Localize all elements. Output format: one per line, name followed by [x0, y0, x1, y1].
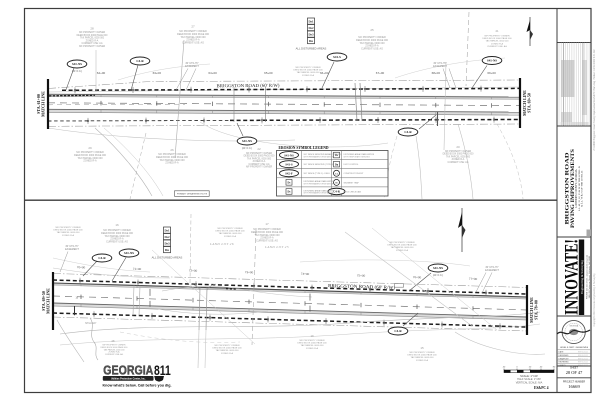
svg-text:Ds3: Ds3 [309, 32, 314, 36]
svg-text:DEED BOOK 0000 PAGE 000: DEED BOOK 0000 PAGE 000 [77, 34, 108, 37]
svg-text:CURRENT USE: AG: CURRENT USE: AG [256, 240, 278, 243]
svg-text:DEED BOOK 0000 PAGE 000: DEED BOOK 0000 PAGE 000 [482, 37, 512, 40]
svg-text:S41-NS: S41-NS [433, 266, 443, 270]
svg-text:STA. 69+50: STA. 69+50 [41, 291, 46, 311]
svg-text:16: 16 [115, 223, 119, 227]
svg-text:STA. 61+00: STA. 61+00 [36, 94, 41, 114]
svg-text:Engineering & Surveying: Engineering & Surveying [580, 260, 584, 294]
svg-text:77+00: 77+00 [469, 277, 478, 281]
svg-text:ZONED R-A: ZONED R-A [221, 352, 234, 355]
svg-text:MATCH LINE: MATCH LINE [46, 288, 51, 314]
svg-text:DEED BOOK 0000 PAGE 000: DEED BOOK 0000 PAGE 000 [53, 229, 83, 232]
svg-text:Ds: Ds [288, 191, 291, 194]
svg-text:TAX PARCEL 0000 000: TAX PARCEL 0000 000 [216, 349, 240, 352]
svg-text:RWH 10-31-22: RWH 10-31-22 [578, 362, 588, 364]
svg-text:VERTICAL SCALE: N/A: VERTICAL SCALE: N/A [516, 381, 543, 384]
svg-text:S41-NS: S41-NS [124, 251, 134, 255]
svg-text:Ds2: Ds2 [309, 26, 314, 30]
svg-text:Z:\16669 Briggston Road Paving: Z:\16669 Briggston Road Paving Improveme… [593, 49, 596, 150]
svg-text:ES&PC 4: ES&PC 4 [534, 385, 549, 390]
svg-text:WITH PERMANENT VEGETATION: WITH PERMANENT VEGETATION [304, 155, 334, 158]
svg-text:ALL DISTURBED AREAS: ALL DISTURBED AREAS [296, 47, 327, 51]
svg-text:S41-NS: S41-NS [487, 59, 497, 63]
svg-text:76+00: 76+00 [413, 275, 422, 279]
svg-text:WITH TEMPORARY SEEDING: WITH TEMPORARY SEEDING [344, 155, 371, 158]
svg-text:26: 26 [170, 148, 174, 152]
svg-text:DEED BOOK 0000 PAGE 000: DEED BOOK 0000 PAGE 000 [244, 155, 275, 158]
svg-text:CURRENT USE: AG: CURRENT USE: AG [105, 353, 124, 356]
svg-text:CURRENT USE: AG: CURRENT USE: AG [447, 161, 468, 164]
svg-text:ALL DISTURBED AREAS: ALL DISTURBED AREAS [152, 256, 183, 260]
svg-text:16': 16' [75, 297, 79, 300]
svg-text:ZONED R-A: ZONED R-A [165, 162, 179, 165]
svg-text:22: 22 [257, 147, 261, 151]
svg-text:PRIMARY DEWATERING NOTE: PRIMARY DEWATERING NOTE [177, 193, 208, 196]
svg-text:EASEMENT: EASEMENT [65, 248, 79, 251]
svg-text:BRIGGSTON ROAD (60' R/W): BRIGGSTON ROAD (60' R/W) [216, 83, 280, 88]
svg-text:DEED BOOK 0000 PAGE 000: DEED BOOK 0000 PAGE 000 [212, 347, 242, 350]
svg-text:N/F PROPERTY OWNER: N/F PROPERTY OWNER [79, 46, 106, 48]
svg-text:GEORGIA: GEORGIA [569, 325, 579, 328]
svg-text:CURRENT USE: AG: CURRENT USE: AG [81, 42, 102, 45]
svg-text:GEORGIA: GEORGIA [103, 364, 153, 378]
svg-text:TAX PARCEL 0000 000: TAX PARCEL 0000 000 [446, 155, 471, 158]
svg-text:2814 N. Patterson Street, Vald: 2814 N. Patterson Street, Valdosta, GA 3… [588, 255, 591, 298]
svg-text:TAX PARCEL 0000 000: TAX PARCEL 0000 000 [57, 231, 81, 234]
svg-text:73+00: 73+00 [245, 270, 254, 274]
svg-text:67+00: 67+00 [376, 71, 385, 75]
svg-text:DEED BOOK 0000 PAGE 000: DEED BOOK 0000 PAGE 000 [297, 342, 327, 345]
svg-text:DEED BOOK 0000 PAGE 000: DEED BOOK 0000 PAGE 000 [443, 153, 474, 156]
svg-text:Ds2: Ds2 [165, 235, 170, 239]
svg-text:TAX PARCEL 0000 000: TAX PARCEL 0000 000 [301, 344, 325, 347]
svg-text:Know what's below. Call before: Know what's below. Call before you dig. [103, 383, 172, 387]
svg-text:N/F PROPERTY OWNER: N/F PROPERTY OWNER [246, 167, 273, 169]
svg-text:CURRENT USE: AG: CURRENT USE: AG [487, 45, 507, 48]
svg-text:S41-S: S41-S [333, 55, 341, 59]
svg-text:WITH PERMANENT VEGETATION: WITH PERMANENT VEGETATION [304, 192, 334, 195]
svg-text:REVIEWED: REVIEWED [559, 362, 570, 364]
svg-text:LAND LOT 26: LAND LOT 26 [209, 242, 234, 246]
svg-text:STA. 78+00: STA. 78+00 [534, 300, 539, 320]
svg-text:ZONED R-A: ZONED R-A [86, 39, 99, 42]
svg-text:DESIGNED: DESIGNED [559, 355, 570, 357]
svg-text:71+00: 71+00 [133, 267, 142, 271]
svg-text:S41-NS: S41-NS [284, 153, 294, 157]
svg-text:74+00: 74+00 [301, 272, 310, 276]
svg-text:Ds1: Ds1 [165, 228, 170, 232]
svg-text:RWH 10-31-22: RWH 10-31-22 [578, 355, 588, 357]
svg-text:ROCK CHECK DAM: ROCK CHECK DAM [344, 190, 362, 193]
svg-text:63+00: 63+00 [153, 71, 162, 75]
svg-text:ZONED R-A: ZONED R-A [83, 160, 97, 163]
svg-text:16669: 16669 [568, 384, 580, 389]
svg-text:TAX PARCEL 0000 000: TAX PARCEL 0000 000 [297, 71, 321, 74]
svg-text:& L.L. 76 & 75 OF THE 11TH L.D: & L.L. 76 & 75 OF THE 11TH L.D. [580, 170, 583, 207]
svg-text:SCALE: 1"=40': SCALE: 1"=40' [520, 374, 538, 378]
svg-text:S42-F: S42-F [285, 171, 293, 175]
svg-text:ZONED R-A: ZONED R-A [253, 160, 266, 163]
svg-text:Copyright 2022 Innovate Engine: Copyright 2022 Innovate Engineering & Su… [593, 273, 596, 327]
svg-text:Du: Du [165, 248, 169, 252]
svg-text:CONSTRUCTION EXIT: CONSTRUCTION EXIT [344, 173, 365, 175]
svg-text:TAX PARCEL 0000 000: TAX PARCEL 0000 000 [247, 157, 272, 160]
svg-text:N/F PROPERTY OWNER: N/F PROPERTY OWNER [445, 151, 472, 153]
svg-text:62+00: 62+00 [97, 71, 106, 75]
svg-text:STA. 69+50: STA. 69+50 [527, 93, 532, 113]
svg-text:TAX PARCEL 0000 000: TAX PARCEL 0000 000 [411, 356, 435, 359]
svg-text:C4-R: C4-R [98, 256, 106, 260]
svg-text:S41-NS: S41-NS [72, 62, 82, 66]
svg-text:64+00: 64+00 [208, 71, 217, 75]
svg-text:Ds: Ds [288, 181, 291, 184]
svg-text:65+00: 65+00 [264, 71, 273, 75]
svg-text:68+00: 68+00 [432, 71, 441, 75]
svg-text:DEED BOOK 0000 PAGE 000: DEED BOOK 0000 PAGE 000 [215, 230, 245, 233]
svg-text:ZONED R-A: ZONED R-A [302, 74, 315, 77]
svg-text:EASEMENT: EASEMENT [433, 65, 447, 68]
svg-text:20: 20 [456, 145, 460, 149]
svg-text:S41-S: S41-S [285, 162, 293, 166]
svg-text:ZONED R-A: ZONED R-A [62, 234, 75, 237]
svg-text:28: 28 [90, 27, 94, 31]
svg-text:SILT FENCE SENSITIVE (TYPE S): SILT FENCE SENSITIVE (TYPE S) [304, 164, 334, 166]
svg-text:Utilities Protection Center, I: Utilities Protection Center, Inc. [111, 378, 146, 381]
svg-text:C4-R: C4-R [136, 59, 144, 63]
svg-text:N/F PROPERTY OWNER: N/F PROPERTY OWNER [246, 153, 273, 155]
svg-text:25: 25 [370, 28, 374, 32]
svg-text:LAND LOT 25: LAND LOT 25 [264, 245, 289, 249]
svg-text:ZONED R-A: ZONED R-A [491, 42, 504, 45]
svg-text:(24' O.C.): (24' O.C.) [72, 70, 82, 73]
svg-text:(24' O.C.): (24' O.C.) [433, 274, 443, 277]
svg-text:DATE: DATE [559, 351, 565, 354]
svg-text:17: 17 [265, 222, 269, 226]
svg-text:C4-R: C4-R [333, 190, 340, 194]
svg-text:CURRENT USE: AG: CURRENT USE: AG [248, 163, 269, 166]
svg-text:TAX PARCEL 0000 000: TAX PARCEL 0000 000 [391, 246, 415, 249]
svg-text:WITH PERMANENT VEGETATION: WITH PERMANENT VEGETATION [304, 183, 334, 186]
svg-text:S41-NS: S41-NS [242, 139, 252, 143]
svg-text:Ds3: Ds3 [165, 241, 170, 245]
svg-text:DEED BOOK 0000 PAGE 000: DEED BOOK 0000 PAGE 000 [407, 354, 437, 357]
svg-text:N/F PROPERTY OWNER: N/F PROPERTY OWNER [79, 32, 106, 34]
svg-text:ZONED R-A: ZONED R-A [224, 235, 237, 238]
svg-text:EASEMENT: EASEMENT [185, 65, 199, 68]
svg-text:ZONED R-A: ZONED R-A [306, 347, 319, 350]
svg-text:DUST CONTROL: DUST CONTROL [344, 164, 359, 166]
svg-text:TAX PARCEL 0000 000: TAX PARCEL 0000 000 [486, 40, 510, 43]
svg-text:19: 19 [310, 334, 314, 338]
svg-text:MATCH LINE: MATCH LINE [41, 91, 46, 117]
svg-text:21: 21 [495, 29, 499, 33]
svg-text:SEDIMENT TRAP: SEDIMENT TRAP [344, 181, 360, 184]
svg-text:CURRENT USE: AG: CURRENT USE: AG [361, 48, 383, 51]
svg-text:15: 15 [420, 346, 424, 350]
svg-text:EROSION SYMBOL LEGEND: EROSION SYMBOL LEGEND [279, 145, 330, 150]
svg-text:27: 27 [191, 25, 195, 29]
svg-text:DEED BOOK 0000 PAGE 000: DEED BOOK 0000 PAGE 000 [293, 69, 323, 72]
svg-text:Ds1: Ds1 [309, 19, 314, 23]
svg-text:RWH 10-31-22: RWH 10-31-22 [578, 352, 588, 354]
svg-text:C4-R: C4-R [394, 329, 402, 333]
svg-text:DRAWN BY: DRAWN BY [559, 357, 570, 360]
svg-text:TAX PARCEL 0000 000: TAX PARCEL 0000 000 [219, 232, 243, 235]
svg-text:SHEET: SHEET [570, 366, 579, 369]
svg-text:69+00: 69+00 [487, 71, 496, 75]
svg-text:C4-R: C4-R [404, 130, 412, 134]
svg-text:75+00: 75+00 [357, 273, 366, 277]
svg-text:TAX PARCEL 0000 000: TAX PARCEL 0000 000 [80, 37, 105, 40]
svg-text:28 OF 47: 28 OF 47 [566, 370, 583, 375]
svg-text:SPILLWAY: SPILLWAY [85, 322, 97, 325]
svg-text:Du: Du [309, 39, 313, 43]
svg-text:Du: Du [335, 163, 339, 166]
svg-text:811: 811 [154, 362, 171, 378]
svg-text:(24' O.C.): (24' O.C.) [242, 147, 252, 150]
svg-text:LEVEL II CERT. #0000023456: LEVEL II CERT. #0000023456 [560, 347, 589, 349]
svg-text:70+00: 70+00 [77, 265, 86, 269]
svg-text:CURRENT USE: AG: CURRENT USE: AG [106, 241, 128, 244]
svg-text:EASEMENT: EASEMENT [485, 269, 499, 272]
svg-text:ZONED R-A: ZONED R-A [452, 158, 465, 161]
svg-text:ZONED R-A: ZONED R-A [416, 359, 429, 362]
svg-text:RWH 10-31-22: RWH 10-31-22 [578, 358, 588, 360]
svg-text:CURRENT USE: AG: CURRENT USE: AG [182, 42, 204, 45]
svg-text:29: 29 [88, 146, 92, 150]
svg-text:SILT FENCE (TYPE C) - FIELD: SILT FENCE (TYPE C) - FIELD [304, 173, 331, 175]
